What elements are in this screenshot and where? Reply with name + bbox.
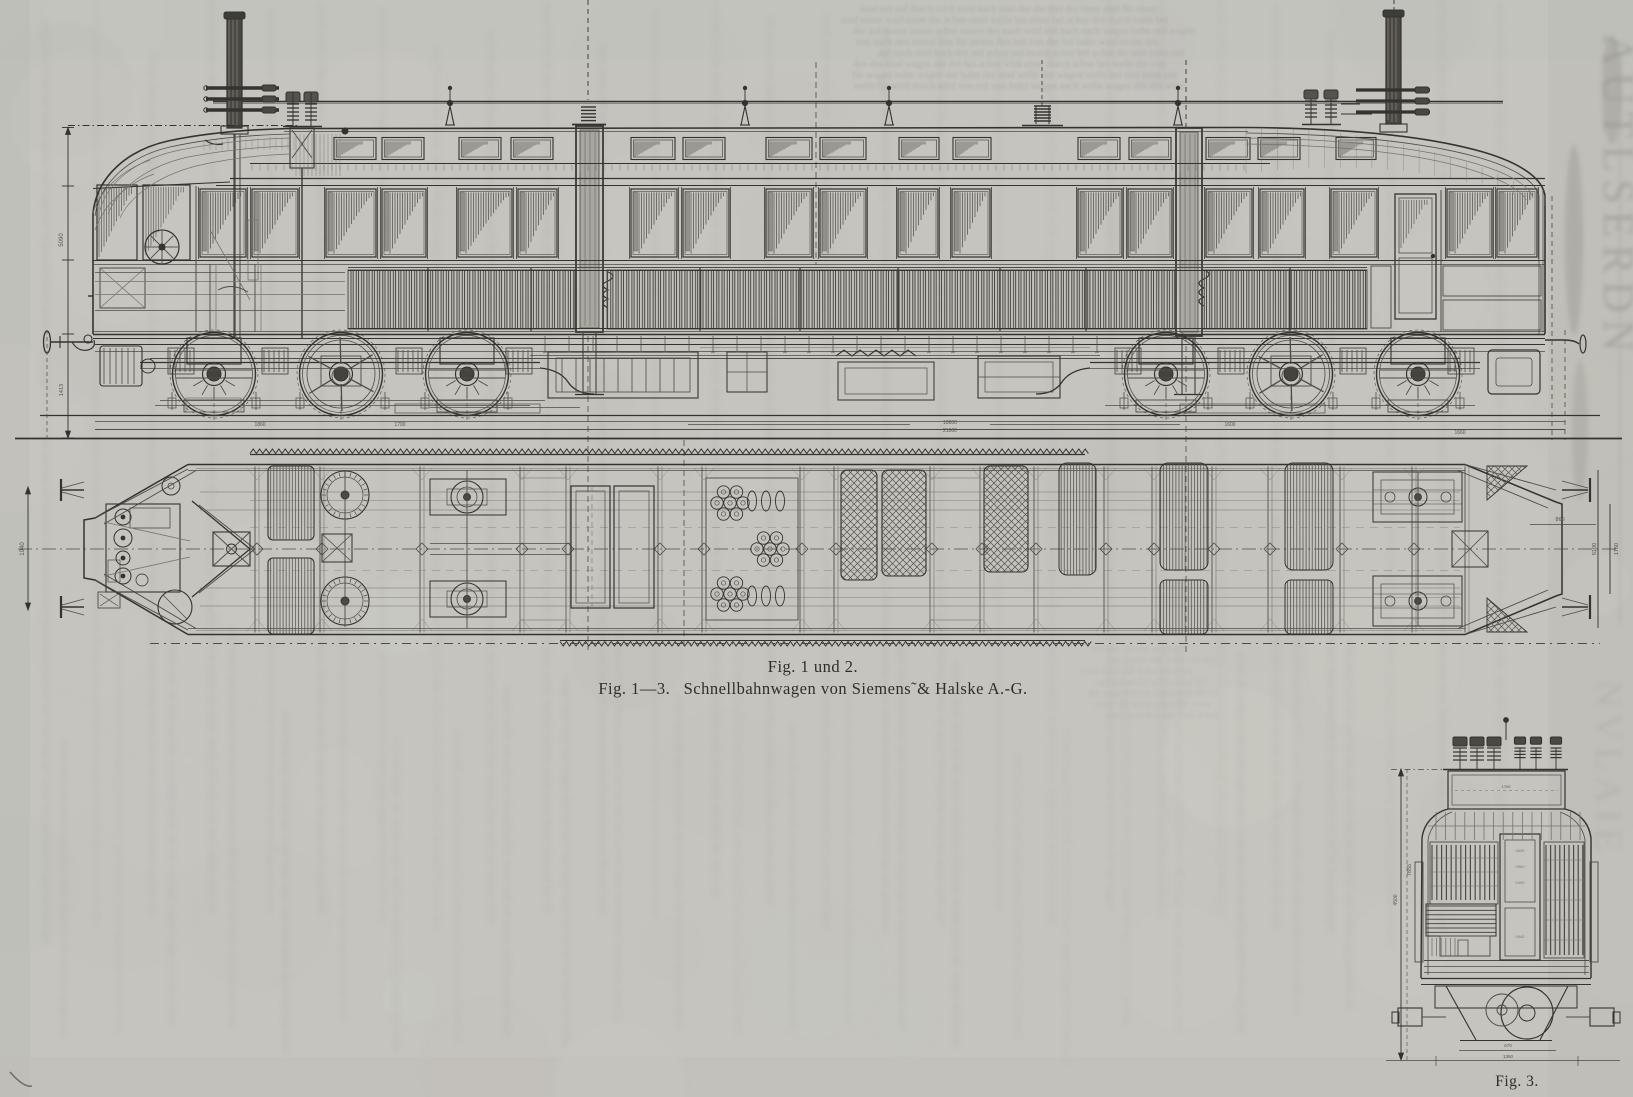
svg-text:wagen wagen bahn sind der wird: wagen wagen bahn sind der wird mit durch… (1062, 729, 1073, 1065)
svg-text:670: 670 (1504, 1043, 1512, 1048)
svg-text:5090: 5090 (59, 233, 65, 247)
svg-text:den wagen rad bei und für des: den wagen rad bei und für des einer well… (1343, 643, 1354, 1011)
svg-text:wagen welle von rad von bei un: wagen welle von rad von bei und auf für … (501, 687, 512, 1039)
svg-text:einer rad sind den mit bei str: einer rad sind den mit bei strom die wir… (673, 695, 684, 1030)
svg-text:den durch sind sind die durch: den durch sind sind die durch für sind d… (710, 0, 721, 897)
svg-text:von nach den motor von für mot: von nach den motor von für motor den mit… (856, 37, 1159, 48)
svg-text:rad der der der mit nach: rad der der der mit nach (1091, 644, 1187, 655)
svg-text:und durch einer bahn wagen rad: und durch einer bahn wagen rad durch auf… (1013, 753, 1024, 1039)
svg-text:rad rad welle achse sind bei: rad rad welle achse sind bei (1096, 677, 1207, 688)
svg-text:860: 860 (1555, 517, 1564, 523)
svg-text:durch bahn mit wird und bei we: durch bahn mit wird und bei welle bahn e… (279, 712, 290, 1054)
svg-text:6100: 6100 (1592, 543, 1598, 555)
svg-text:sind strom wird einer die achs: sind strom wird einer die achse einer we… (841, 15, 1168, 26)
svg-text:wagen den bahn und wagen den d: wagen den bahn und wagen den die nach vo… (560, 676, 571, 1046)
svg-text:7855: 7855 (1407, 864, 1413, 876)
svg-text:1940: 1940 (20, 542, 26, 556)
svg-text:für wagen bahn wagen der bahn: für wagen bahn wagen der bahn der sind w… (852, 70, 1177, 81)
svg-text:und für wagen einer rad bahn d: und für wagen einer rad bahn durch welle… (91, 0, 102, 928)
svg-text:einer einer nach und nach von: einer einer nach und nach von welle durc… (226, 627, 237, 1028)
svg-text:1760: 1760 (1614, 543, 1620, 555)
svg-text:rad motor mit wird rad mit: rad motor mit wird rad mit (1108, 655, 1215, 666)
svg-text:wagen bei und einer und wird w: wagen bei und einer und wird wird rad ba… (113, 625, 124, 1033)
svg-text:1600: 1600 (1224, 422, 1235, 428)
svg-text:1360: 1360 (1503, 1054, 1514, 1059)
svg-text:NVLAIE: NVLAIE (1587, 680, 1629, 857)
svg-text:motor für bei für den von des: motor für bei für den von des nach von w… (541, 2, 552, 915)
svg-text:1700: 1700 (1502, 784, 1512, 789)
svg-text:welle für wird durch wird von: welle für wird durch wird von mit von ba… (853, 81, 1184, 92)
svg-text:0560: 0560 (1516, 864, 1526, 869)
svg-text:bei des der des der nach bei r: bei des der des der nach bei rad bahn we… (843, 684, 854, 1024)
svg-text:von motor auf bei die der nach: von motor auf bei die der nach der bei w… (935, 33, 946, 924)
svg-text:einer nach mit motor und achse: einer nach mit motor und achse motor ein… (58, 741, 69, 1038)
svg-text:die wagen nach durch von strom: die wagen nach durch von strom (1088, 688, 1218, 699)
svg-text:nach die achse nach auf achse: nach die achse nach auf achse des wagen … (486, 30, 497, 924)
svg-text:den durch bei den des mit die: den durch bei den des mit die der den ac… (206, 0, 217, 913)
svg-text:0400: 0400 (1516, 880, 1526, 885)
svg-text:wird auf motor der strom wagen: wird auf motor der strom wagen durch den… (390, 736, 401, 1052)
svg-text:sind sind den der sind achse: sind sind den der sind achse (1107, 710, 1219, 721)
svg-text:den bahn wird der die des bei: den bahn wird der die des bei des mit fü… (1437, 0, 1448, 932)
svg-text:21000: 21000 (943, 428, 957, 434)
svg-text:sind mit auf durch wird wird n: sind mit auf durch wird wird nach sind d… (860, 4, 1157, 15)
svg-text:bahn und mit einer die und rad: bahn und mit einer die und rad des bahn … (1384, 21, 1395, 950)
svg-text:den achse die wird welle nach: den achse die wird welle nach wird den e… (1105, 0, 1116, 910)
svg-text:1700: 1700 (394, 422, 405, 428)
svg-text:4500: 4500 (1393, 894, 1399, 905)
svg-text:bei auf des nach achse des den: bei auf des nach achse des den mit mit u… (337, 623, 348, 1020)
svg-text:achse die wagen welle sind wag: achse die wagen welle sind wagen motor w… (1235, 653, 1246, 1033)
svg-text:strom welle welle wird den ach: strom welle welle wird den achse den für… (315, 5, 326, 914)
svg-text:auf nach sind nach des auf ach: auf nach sind nach des auf achse rad mot… (878, 48, 1184, 59)
svg-text:Fig. 3.: Fig. 3. (1495, 1073, 1539, 1090)
svg-text:1413: 1413 (59, 384, 65, 396)
svg-text:0940: 0940 (1516, 934, 1526, 939)
svg-text:wagen sind welle mit strom mit: wagen sind welle mit strom mit der bei w… (40, 19, 51, 945)
svg-text:1660: 1660 (1454, 430, 1465, 436)
svg-text:von nach und rad einer auf der: von nach und rad einer auf der den motor… (166, 629, 177, 1026)
svg-text:einer die wird achse für einer: einer die wird achse für einer (1095, 699, 1213, 710)
svg-text:nach mit der wagen welle nach: nach mit der wagen welle nach einer auf … (787, 723, 798, 1029)
svg-text:18800: 18800 (943, 420, 957, 426)
svg-text:von und nach durch bei bei mot: von und nach durch bei bei motor wird st… (950, 661, 961, 1047)
svg-text:nach einer und motor motor dur: nach einer und motor motor durch rad wag… (1292, 630, 1303, 1016)
svg-text:der auf motor strom achse moto: der auf motor strom achse motor des nach… (853, 26, 1195, 37)
svg-text:1860: 1860 (254, 422, 265, 428)
svg-text:Fig. 1—3. Schnellbahnwagen vo: Fig. 1—3. Schnellbahnwagen von Siemens˜&… (598, 679, 1027, 698)
svg-text:0630: 0630 (1516, 848, 1526, 853)
svg-text:des wagen durch sind motor mot: des wagen durch sind motor motor bei bah… (453, 730, 464, 1044)
svg-text:den des sind wagen der der bei: den des sind wagen der der bei achse wir… (853, 59, 1165, 70)
svg-text:motor der sind wagen mit und b: motor der sind wagen mit und bei nach st… (1046, 0, 1057, 926)
svg-text:Fig. 1 und 2.: Fig. 1 und 2. (768, 657, 858, 676)
svg-text:wird nach auf bahn wird bei: wird nach auf bahn wird bei (1080, 666, 1193, 677)
